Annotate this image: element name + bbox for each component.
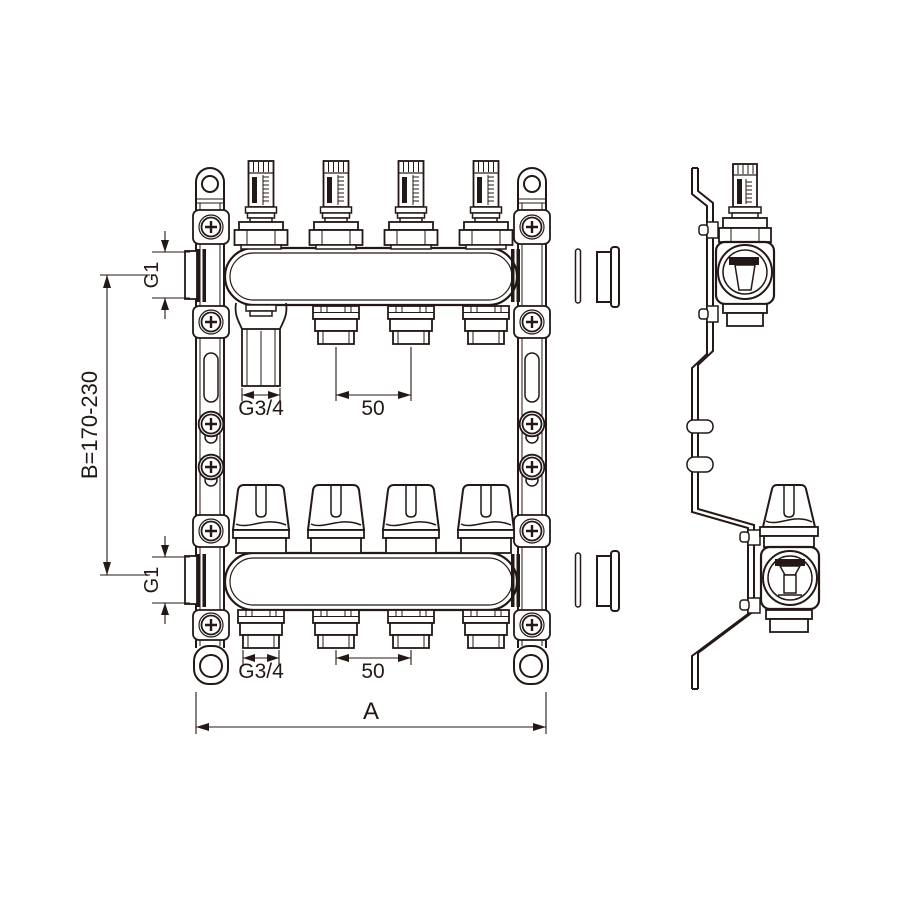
side-flow-valve-top <box>699 164 774 326</box>
dim-port-top: G1 <box>141 231 190 319</box>
top-outlets <box>313 306 509 344</box>
front-view <box>185 161 550 684</box>
bracket-hole-bottom-right <box>520 655 542 677</box>
dim-label-overall-width: A <box>363 698 379 725</box>
clamp-screw <box>199 215 223 239</box>
bracket-screw-right-mid2 <box>520 455 544 479</box>
clamp-screw <box>199 613 223 637</box>
bottom-outlet-4 <box>463 610 509 648</box>
dim-port-bottom: G1 <box>141 536 190 624</box>
bracket-screw-left-mid1 <box>199 412 223 436</box>
dim-outlet-thread-bottom: G3/4 <box>238 650 284 683</box>
dim-overall-width: A <box>196 692 546 734</box>
valve-knob-3 <box>383 485 439 553</box>
dim-label-outlet-pitch-top: 50 <box>361 397 384 420</box>
valve-knob-1 <box>233 485 289 553</box>
clamp-screw <box>199 519 223 543</box>
clamp-screw <box>520 519 544 543</box>
supply-port-left <box>185 249 206 302</box>
dim-outlet-pitch-top: 50 <box>336 347 411 420</box>
dim-label-outlet-thread-top: G3/4 <box>238 397 284 420</box>
bottom-manifold-bar <box>225 553 517 610</box>
top-outlet-4 <box>463 306 509 344</box>
drawing-sheet: B=170-230 G1 G1 G3/4 <box>0 0 900 900</box>
loose-parts <box>576 247 620 611</box>
top-outlet-2 <box>313 306 359 344</box>
top-manifold-bar <box>225 248 517 305</box>
bracket-hole-bottom-left <box>200 655 222 677</box>
bottom-outlets <box>238 610 509 648</box>
end-cap-bottom <box>597 551 619 611</box>
flow-meter-4 <box>460 161 513 249</box>
bracket-slot-right <box>525 353 539 402</box>
top-outlet-1-union <box>236 303 287 386</box>
flow-meter-3 <box>385 161 438 249</box>
side-knob-valve-bottom <box>740 485 819 632</box>
clamp-screw <box>520 613 544 637</box>
bracket-slot-left <box>204 353 218 402</box>
flow-meters <box>235 161 513 249</box>
bottom-outlet-2 <box>313 610 359 648</box>
side-screw-boss-mid2 <box>687 457 713 472</box>
side-screw-boss-mid1 <box>687 420 713 433</box>
dim-outlet-thread-top: G3/4 <box>238 388 284 420</box>
gasket-top <box>576 249 581 303</box>
clamp-screw <box>520 215 544 239</box>
valve-knob-2 <box>308 485 364 553</box>
bottom-outlet-3 <box>388 610 434 648</box>
dim-bar-distance: B=170-230 <box>77 275 150 575</box>
dim-label-port-bottom: G1 <box>141 567 163 594</box>
bottom-outlet-1 <box>238 610 284 648</box>
flow-meter-1 <box>235 161 288 249</box>
side-view <box>687 164 819 689</box>
clamp-screw <box>520 310 544 334</box>
bracket-hole-top-right <box>524 176 540 192</box>
end-cap-top <box>597 247 619 307</box>
clamp-screw <box>199 310 223 334</box>
top-outlet-3 <box>388 306 434 344</box>
dim-label-outlet-thread-bottom: G3/4 <box>238 660 284 683</box>
valve-knob-4 <box>458 485 514 553</box>
return-port-left <box>185 554 206 607</box>
flow-meter-2 <box>310 161 363 249</box>
bracket-screw-left-mid2 <box>199 455 223 479</box>
bracket-screw-right-mid1 <box>520 412 544 436</box>
dim-outlet-pitch-bottom: 50 <box>336 650 411 683</box>
valve-knobs <box>233 485 514 553</box>
dim-label-port-top: G1 <box>141 262 163 289</box>
technical-drawing-canvas: B=170-230 G1 G1 G3/4 <box>0 0 900 900</box>
gasket-bottom <box>576 553 581 607</box>
bracket-hole-top-left <box>202 176 218 192</box>
dim-label-outlet-pitch-bottom: 50 <box>361 660 384 683</box>
dim-label-bar-distance: B=170-230 <box>77 371 102 479</box>
